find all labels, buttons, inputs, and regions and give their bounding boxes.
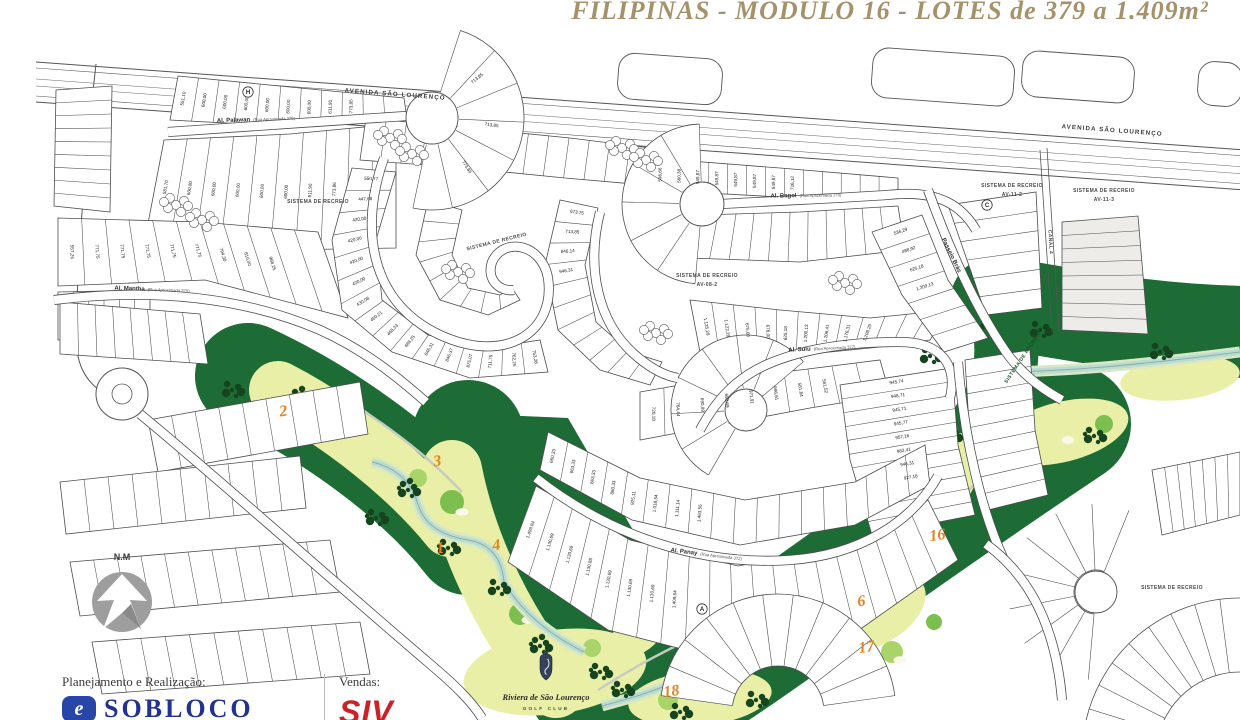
recreation-label-3: SISTEMA DE RECREIO: [676, 273, 738, 279]
lot-area-label: 846,14: [561, 248, 576, 254]
golf-hole-number: 16: [928, 526, 946, 545]
lot-area-label: 596,66: [657, 167, 662, 181]
page-title: FILIPINAS - MODULO 16 - LOTES de 379 a 1…: [555, 0, 1225, 26]
golf-club-name: Riviera de São Lourenço: [501, 692, 589, 702]
lot-area-label: 557,26: [69, 245, 74, 260]
golf-club-emblem: [540, 651, 552, 680]
lot-area-label: 720,18: [651, 407, 656, 422]
lot-area-label: 600,00: [285, 99, 291, 114]
sobloco-logo-icon: e: [62, 696, 96, 720]
lot-area-label: 771,75: [94, 244, 100, 259]
canal-label: CANAL 4: [1046, 230, 1053, 255]
sobloco-brand-text: SOBLOCO: [104, 694, 254, 720]
lot-area-label: 764,44: [675, 402, 681, 417]
compass-label: N.M: [114, 552, 131, 562]
golf-club-subtitle: GOLF CLUB: [523, 706, 570, 711]
sobloco-logo: e SOBLOCO: [62, 694, 288, 720]
site-plan-map: 551,10600,00600,00600,00600,00600,00600,…: [0, 0, 1240, 720]
sales-section: Vendas: SIV: [339, 674, 394, 720]
recreation-label-6: SISTEMA DE RECREIO: [1141, 585, 1203, 591]
lot-area-label: 611,90: [307, 183, 313, 197]
lot-area-label: 713,85: [565, 229, 580, 235]
recreation-code-av-08-2: AV-08-2: [697, 282, 718, 288]
block-marker: H: [246, 90, 250, 96]
footer-divider: [324, 674, 325, 720]
recreation-label-1: SISTEMA DE RECREIO: [287, 199, 349, 205]
lot-area-label: 773,86: [331, 182, 337, 197]
lot-area-label: 549,87: [752, 173, 757, 188]
site-plan-page: 551,10600,00600,00600,00600,00600,00600,…: [0, 0, 1240, 720]
recreation-label-5: SISTEMA DE RECREIO: [1073, 188, 1135, 194]
lot-area-label: 600,00: [306, 100, 312, 115]
lot-area-label: 447,68: [358, 196, 373, 202]
avenue-label-east: AVENIDA SÃO LOURENÇO: [1061, 123, 1163, 138]
block-marker: A: [700, 607, 705, 613]
golf-hole-number: 18: [662, 682, 680, 701]
lot-area-label: 549,87: [714, 171, 719, 186]
sales-label: Vendas:: [339, 674, 394, 690]
lot-area-label: 549,87: [771, 175, 776, 190]
lot-area-label: 560,38: [676, 168, 681, 182]
recreation-code-av-11-3: AV-11-3: [1094, 197, 1115, 203]
lot-area-label: 549,87: [695, 170, 700, 185]
planning-section: Planejamento e Realização: e SOBLOCO: [62, 674, 288, 720]
footer: Planejamento e Realização: e SOBLOCO Ven…: [62, 674, 394, 720]
block-marker: C: [985, 203, 990, 209]
lot-area-label: 690,99: [700, 398, 706, 413]
lot-area-label: 625,18: [783, 326, 788, 341]
recreation-code-av-11-2: AV-11-2: [1002, 192, 1023, 198]
lot-area-label: 773,85: [349, 99, 354, 113]
recreation-label-4: SISTEMA DE RECREIO: [981, 183, 1043, 189]
lot-area-label: 678,00: [765, 325, 770, 340]
siv-logo: SIV: [339, 694, 394, 720]
lot-area-label: 550,77: [364, 176, 379, 182]
lot-area-label: 611,90: [327, 99, 332, 113]
lot-area-label: 762,25: [511, 352, 517, 367]
planning-label: Planejamento e Realização:: [62, 674, 288, 690]
lot-area-label: 549,87: [733, 172, 738, 187]
lot-area-label: 726,12: [790, 176, 795, 191]
